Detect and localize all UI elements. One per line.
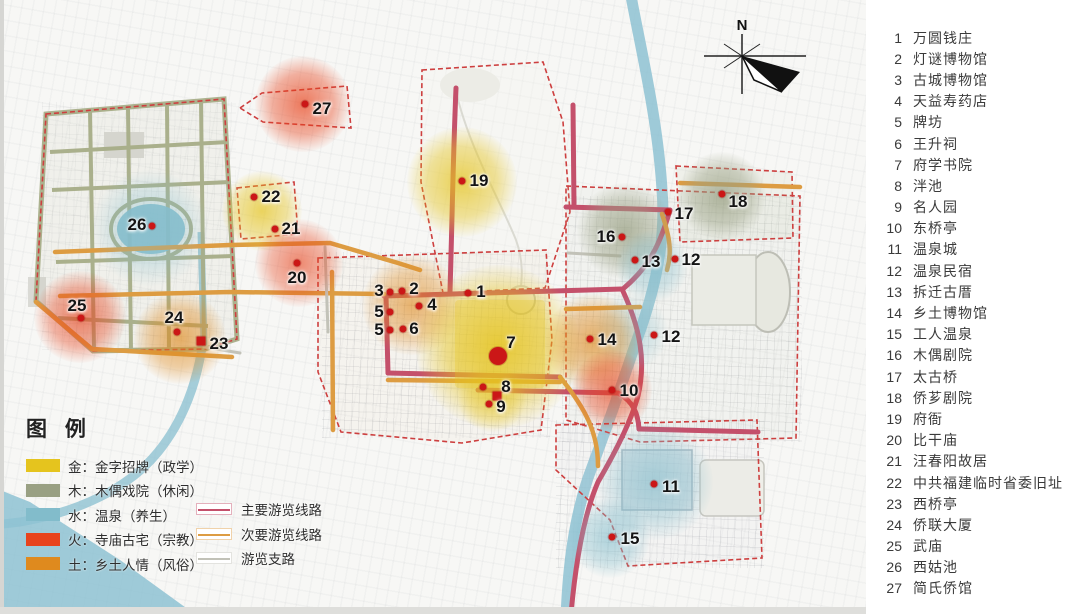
poi-marker-dot bbox=[609, 534, 616, 541]
route-secondary bbox=[388, 380, 560, 382]
poi-list-number: 23 bbox=[878, 496, 902, 512]
poi-list-number: 16 bbox=[878, 347, 902, 363]
poi-marker-dot bbox=[400, 326, 407, 333]
route-main bbox=[639, 429, 758, 432]
poi-marker-dot bbox=[665, 209, 672, 216]
poi-list-item: 19府衙 bbox=[878, 408, 1080, 429]
poi-marker-dot bbox=[719, 191, 726, 198]
poi-list-name: 乡土博物馆 bbox=[913, 303, 988, 323]
legend-category-label: 水：温泉（养生） bbox=[68, 505, 176, 525]
poi-list-item: 11温泉城 bbox=[878, 239, 1080, 260]
poi-list-number: 8 bbox=[878, 178, 902, 194]
legend-routes: 主要游览线路次要游览线路游览支路 bbox=[196, 503, 322, 577]
poi-list-number: 26 bbox=[878, 559, 902, 575]
poi-list-name: 汪春阳故居 bbox=[913, 451, 988, 471]
poi-list-number: 25 bbox=[878, 538, 902, 554]
poi-list-number: 17 bbox=[878, 369, 902, 385]
poi-list-item: 10东桥亭 bbox=[878, 218, 1080, 239]
poi-list-name: 比干庙 bbox=[913, 430, 958, 450]
poi-list-item: 5牌坊 bbox=[878, 112, 1080, 133]
poi-marker-number: 12 bbox=[682, 250, 701, 270]
poi-index-panel: 1万圆钱庄2灯谜博物馆3古城博物馆4天益寿药店5牌坊6王升祠7府学书院8泮池9名… bbox=[866, 0, 1080, 614]
poi-list-number: 18 bbox=[878, 390, 902, 406]
poi-list-name: 万圆钱庄 bbox=[913, 28, 973, 48]
legend-route-swatch bbox=[196, 552, 232, 564]
legend-route-label: 游览支路 bbox=[241, 548, 295, 568]
map-edge-left bbox=[0, 0, 4, 614]
legend-route-line bbox=[198, 534, 230, 536]
screenshot-root: 1234556789101112121314151617181920212223… bbox=[0, 0, 1080, 614]
legend-category-swatch bbox=[26, 533, 60, 546]
poi-marker-number: 23 bbox=[210, 334, 229, 354]
poi-marker-number: 12 bbox=[662, 327, 681, 347]
poi-list-name: 泮池 bbox=[913, 176, 943, 196]
poi-marker-number: 7 bbox=[506, 333, 515, 353]
legend-route-row: 次要游览线路 bbox=[196, 528, 322, 540]
north-label: N bbox=[737, 17, 748, 34]
poi-list-number: 20 bbox=[878, 432, 902, 448]
poi-marker-dot bbox=[465, 290, 472, 297]
poi-marker-number: 26 bbox=[128, 215, 147, 235]
poi-marker-number: 10 bbox=[620, 381, 639, 401]
poi-list-name: 名人园 bbox=[913, 197, 958, 217]
poi-list-name: 太古桥 bbox=[913, 367, 958, 387]
poi-list-name: 西姑池 bbox=[913, 557, 958, 577]
poi-marker-dot bbox=[149, 223, 156, 230]
poi-list-item: 18侨芗剧院 bbox=[878, 387, 1080, 408]
poi-list-item: 21汪春阳故居 bbox=[878, 451, 1080, 472]
legend-title: 图 例 bbox=[26, 413, 386, 443]
poi-list-item: 17太古桥 bbox=[878, 366, 1080, 387]
poi-marker-number: 17 bbox=[675, 204, 694, 224]
poi-list-number: 21 bbox=[878, 453, 902, 469]
poi-marker-number: 8 bbox=[501, 377, 510, 397]
poi-marker-number: 11 bbox=[662, 477, 680, 497]
poi-list-number: 10 bbox=[878, 220, 902, 236]
poi-marker-dot bbox=[486, 401, 493, 408]
map-edge-bottom bbox=[0, 607, 866, 614]
legend-category-label: 火：寺庙古宅（宗教） bbox=[68, 529, 203, 549]
poi-list-item: 22中共福建临时省委旧址 bbox=[878, 472, 1080, 493]
poi-list-item: 1万圆钱庄 bbox=[878, 27, 1080, 48]
poi-marker-dot bbox=[302, 101, 309, 108]
poi-marker-dot bbox=[619, 234, 626, 241]
poi-marker-number: 21 bbox=[282, 219, 301, 239]
poi-marker-dot bbox=[587, 336, 594, 343]
poi-marker-dot bbox=[672, 256, 679, 263]
poi-marker-number: 24 bbox=[165, 308, 184, 328]
legend-route-swatch bbox=[196, 528, 232, 540]
route-main bbox=[386, 296, 388, 373]
poi-list-item: 6王升祠 bbox=[878, 133, 1080, 154]
poi-marker-number: 22 bbox=[262, 187, 281, 207]
poi-list-item: 24侨联大厦 bbox=[878, 514, 1080, 535]
poi-marker-number: 5 bbox=[374, 320, 383, 340]
legend-category-swatch bbox=[26, 508, 60, 521]
legend-category-swatch bbox=[26, 459, 60, 472]
poi-list-item: 3古城博物馆 bbox=[878, 69, 1080, 90]
poi-list-name: 府学书院 bbox=[913, 155, 973, 175]
route-main bbox=[566, 207, 670, 210]
legend-route-line bbox=[198, 558, 230, 560]
poi-marker-dot bbox=[399, 288, 406, 295]
poi-marker-dot bbox=[387, 309, 394, 316]
poi-list: 1万圆钱庄2灯谜博物馆3古城博物馆4天益寿药店5牌坊6王升祠7府学书院8泮池9名… bbox=[878, 27, 1080, 599]
poi-list-item: 25武庙 bbox=[878, 536, 1080, 557]
poi-list-number: 19 bbox=[878, 411, 902, 427]
poi-marker-number: 19 bbox=[470, 171, 489, 191]
poi-marker-number: 18 bbox=[729, 192, 748, 212]
poi-list-number: 13 bbox=[878, 284, 902, 300]
poi-marker-number: 3 bbox=[374, 281, 383, 301]
poi-marker-dot bbox=[387, 289, 394, 296]
poi-marker-number: 4 bbox=[427, 295, 436, 315]
legend-category-row: 金：金字招牌（政学） bbox=[26, 459, 386, 472]
poi-marker-number: 27 bbox=[313, 99, 332, 119]
poi-marker-number: 9 bbox=[496, 397, 505, 417]
route-secondary bbox=[566, 307, 640, 309]
poi-list-number: 3 bbox=[878, 72, 902, 88]
poi-marker-dot bbox=[197, 337, 206, 346]
poi-marker-dot bbox=[174, 329, 181, 336]
poi-list-name: 工人温泉 bbox=[913, 324, 973, 344]
legend-route-label: 次要游览线路 bbox=[241, 524, 322, 544]
poi-marker-number: 16 bbox=[597, 227, 616, 247]
north-arrow: N bbox=[696, 12, 816, 107]
route-main bbox=[573, 105, 574, 206]
route-secondary bbox=[332, 272, 333, 430]
poi-list-number: 7 bbox=[878, 157, 902, 173]
legend-category-label: 木：木偶戏院（休闲） bbox=[68, 480, 203, 500]
poi-list-item: 26西姑池 bbox=[878, 557, 1080, 578]
poi-marker-number: 6 bbox=[409, 319, 418, 339]
legend-route-row: 主要游览线路 bbox=[196, 503, 322, 515]
legend-category-row: 木：木偶戏院（休闲） bbox=[26, 484, 386, 497]
poi-list-number: 9 bbox=[878, 199, 902, 215]
poi-marker-dot bbox=[251, 194, 258, 201]
poi-list-item: 4天益寿药店 bbox=[878, 91, 1080, 112]
poi-list-name: 木偶剧院 bbox=[913, 345, 973, 365]
poi-marker-dot bbox=[459, 178, 466, 185]
poi-list-item: 7府学书院 bbox=[878, 154, 1080, 175]
poi-list-number: 14 bbox=[878, 305, 902, 321]
poi-list-name: 温泉城 bbox=[913, 239, 958, 259]
legend-route-line bbox=[198, 509, 230, 511]
poi-list-name: 东桥亭 bbox=[913, 218, 958, 238]
poi-list-item: 8泮池 bbox=[878, 175, 1080, 196]
poi-list-name: 灯谜博物馆 bbox=[913, 49, 988, 69]
poi-marker-number: 14 bbox=[598, 330, 617, 350]
poi-list-number: 4 bbox=[878, 93, 902, 109]
poi-marker-number: 25 bbox=[68, 296, 87, 316]
poi-marker-number: 5 bbox=[374, 302, 383, 322]
poi-list-number: 1 bbox=[878, 30, 902, 46]
poi-list-name: 牌坊 bbox=[913, 112, 943, 132]
poi-list-name: 中共福建临时省委旧址 bbox=[913, 473, 1063, 493]
poi-list-number: 27 bbox=[878, 580, 902, 596]
poi-marker-dot bbox=[272, 226, 279, 233]
poi-list-number: 6 bbox=[878, 136, 902, 152]
poi-marker-dot bbox=[632, 257, 639, 264]
poi-marker-number: 20 bbox=[288, 268, 307, 288]
legend-route-label: 主要游览线路 bbox=[241, 499, 322, 519]
poi-list-number: 11 bbox=[878, 241, 902, 257]
poi-list-number: 24 bbox=[878, 517, 902, 533]
poi-marker-number: 2 bbox=[409, 279, 418, 299]
poi-list-name: 温泉民宿 bbox=[913, 261, 973, 281]
legend-route-row: 游览支路 bbox=[196, 552, 322, 564]
legend-category-swatch bbox=[26, 557, 60, 570]
poi-marker-dot bbox=[489, 347, 507, 365]
poi-list-item: 20比干庙 bbox=[878, 430, 1080, 451]
legend-category-label: 金：金字招牌（政学） bbox=[68, 456, 203, 476]
poi-list-name: 王升祠 bbox=[913, 134, 958, 154]
poi-list-number: 5 bbox=[878, 114, 902, 130]
poi-marker-dot bbox=[480, 384, 487, 391]
poi-list-item: 27简氏侨馆 bbox=[878, 578, 1080, 599]
poi-list-item: 14乡土博物馆 bbox=[878, 302, 1080, 323]
poi-list-item: 12温泉民宿 bbox=[878, 260, 1080, 281]
poi-list-name: 古城博物馆 bbox=[913, 70, 988, 90]
legend-route-swatch bbox=[196, 503, 232, 515]
poi-list-item: 9名人园 bbox=[878, 197, 1080, 218]
poi-marker-dot bbox=[416, 303, 423, 310]
poi-list-name: 拆迁古厝 bbox=[913, 282, 973, 302]
poi-marker-dot bbox=[609, 387, 616, 394]
poi-list-name: 西桥亭 bbox=[913, 494, 958, 514]
legend: 图 例 金：金字招牌（政学）木：木偶戏院（休闲）水：温泉（养生）火：寺庙古宅（宗… bbox=[26, 413, 386, 582]
poi-marker-number: 1 bbox=[476, 282, 485, 302]
legend-category-swatch bbox=[26, 484, 60, 497]
poi-list-number: 2 bbox=[878, 51, 902, 67]
poi-marker-number: 15 bbox=[621, 529, 640, 549]
poi-marker-dot bbox=[387, 327, 394, 334]
tourism-map-canvas[interactable]: 1234556789101112121314151617181920212223… bbox=[0, 0, 866, 614]
poi-list-name: 简氏侨馆 bbox=[913, 578, 973, 598]
poi-list-number: 22 bbox=[878, 475, 902, 491]
poi-list-item: 23西桥亭 bbox=[878, 493, 1080, 514]
poi-marker-dot bbox=[651, 481, 658, 488]
poi-list-name: 武庙 bbox=[913, 536, 943, 556]
poi-list-item: 15工人温泉 bbox=[878, 324, 1080, 345]
poi-list-name: 天益寿药店 bbox=[913, 91, 988, 111]
poi-list-name: 府衙 bbox=[913, 409, 943, 429]
poi-list-item: 13拆迁古厝 bbox=[878, 281, 1080, 302]
poi-list-item: 16木偶剧院 bbox=[878, 345, 1080, 366]
legend-category-label: 土：乡土人情（风俗） bbox=[68, 554, 203, 574]
poi-marker-dot bbox=[651, 332, 658, 339]
poi-list-item: 2灯谜博物馆 bbox=[878, 48, 1080, 69]
poi-list-name: 侨联大厦 bbox=[913, 515, 973, 535]
poi-list-number: 12 bbox=[878, 263, 902, 279]
poi-list-name: 侨芗剧院 bbox=[913, 388, 973, 408]
poi-list-number: 15 bbox=[878, 326, 902, 342]
poi-marker-dot bbox=[294, 260, 301, 267]
poi-marker-number: 13 bbox=[642, 252, 661, 272]
